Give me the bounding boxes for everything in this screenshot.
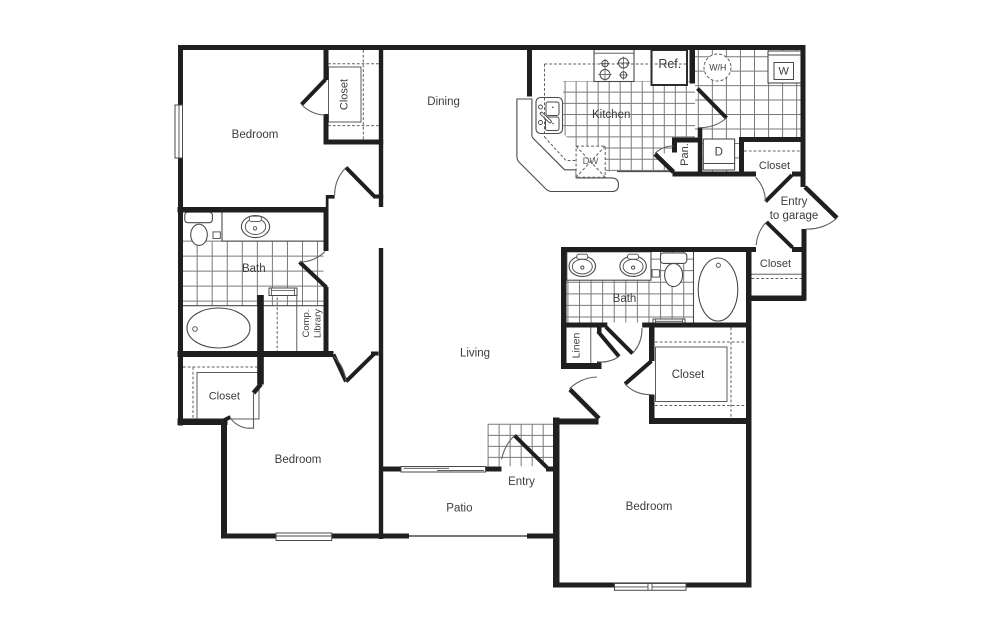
svg-text:W/H: W/H [709, 62, 726, 72]
svg-text:Ref.: Ref. [658, 57, 681, 71]
svg-text:Closet: Closet [759, 160, 790, 172]
svg-text:W: W [779, 66, 790, 78]
svg-text:Bath: Bath [613, 293, 637, 305]
svg-text:Comp.: Comp. [301, 310, 312, 338]
svg-text:Closet: Closet [760, 258, 791, 270]
svg-text:Pan.: Pan. [679, 143, 691, 166]
svg-text:Bedroom: Bedroom [275, 454, 322, 466]
svg-text:Bedroom: Bedroom [626, 501, 673, 513]
svg-text:Living: Living [460, 348, 490, 360]
svg-text:Closet: Closet [338, 79, 350, 110]
svg-text:to garage: to garage [770, 210, 819, 222]
svg-text:Library: Library [313, 309, 324, 338]
svg-text:Closet: Closet [209, 390, 240, 402]
svg-text:D: D [715, 146, 723, 158]
svg-text:Bedroom: Bedroom [232, 129, 279, 141]
svg-text:Patio: Patio [446, 503, 472, 515]
svg-text:Entry: Entry [781, 196, 808, 208]
svg-text:Closet: Closet [672, 369, 705, 381]
svg-text:Linen: Linen [571, 333, 583, 359]
svg-text:DW: DW [583, 156, 599, 167]
svg-text:Kitchen: Kitchen [592, 109, 630, 121]
svg-text:Dining: Dining [427, 96, 460, 108]
svg-text:Entry: Entry [508, 476, 535, 488]
svg-text:Bath: Bath [242, 263, 266, 275]
